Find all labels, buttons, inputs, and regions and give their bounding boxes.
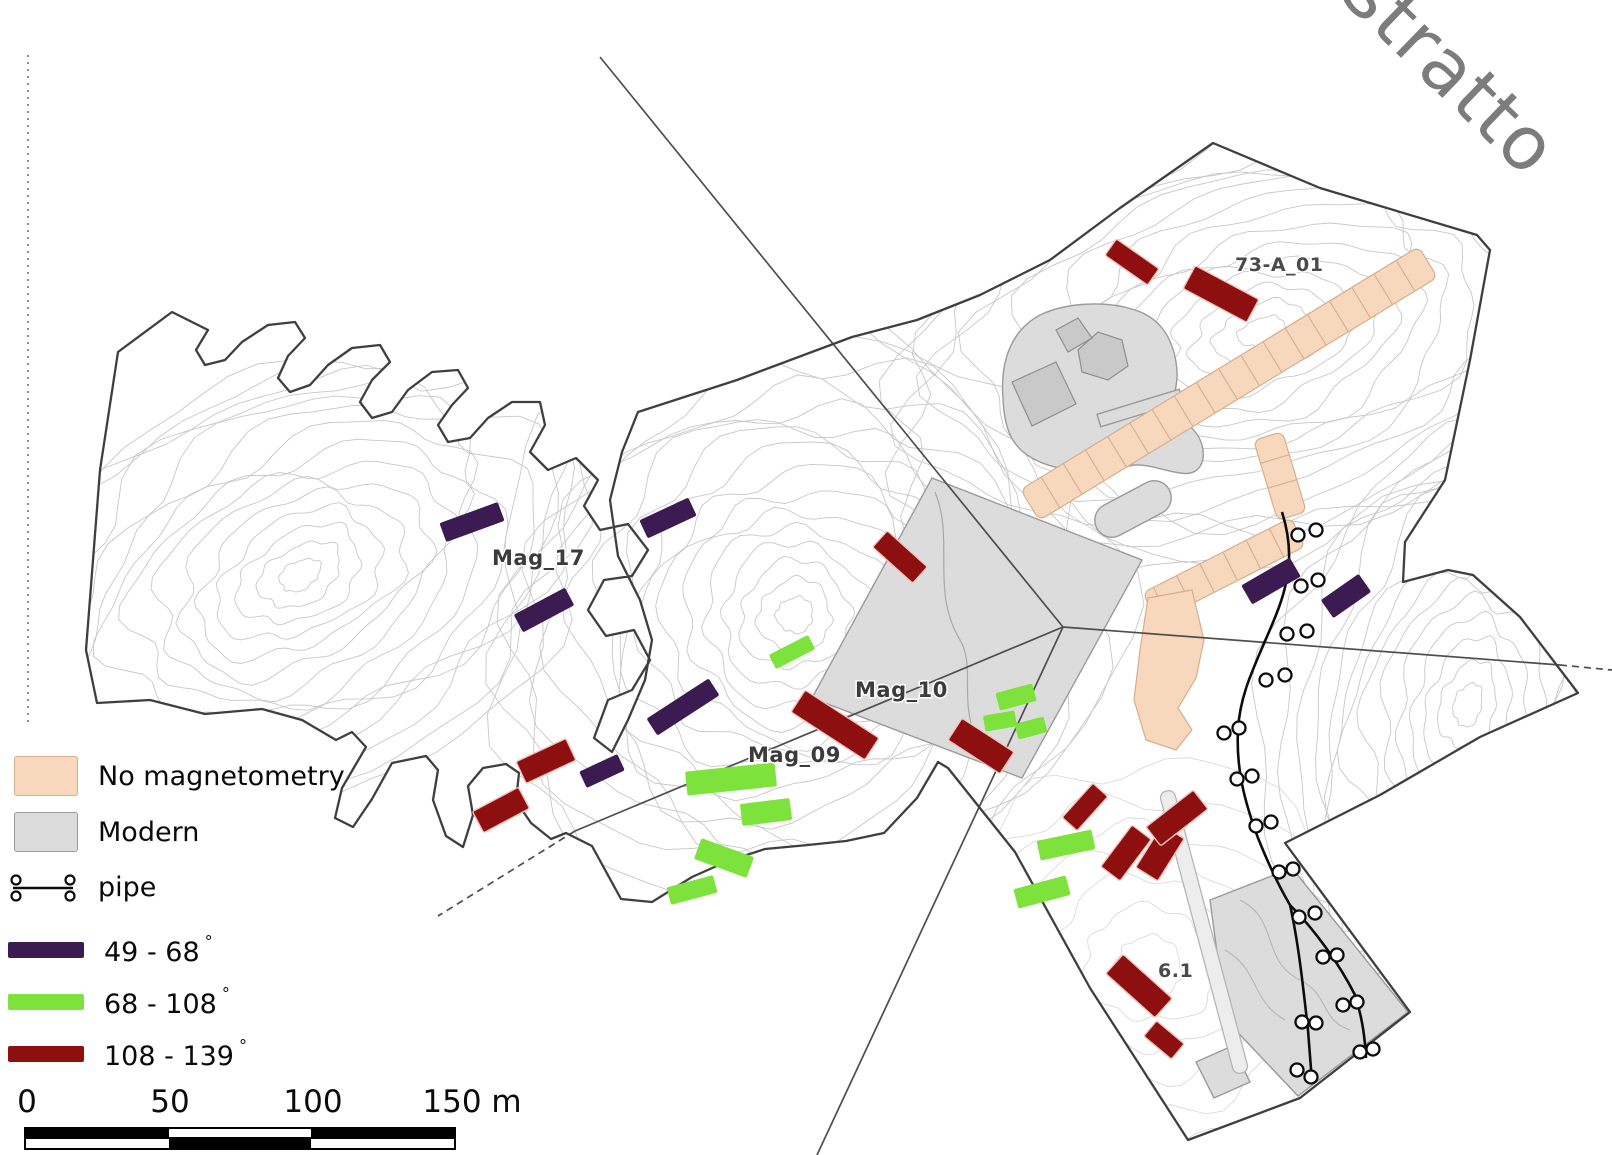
anomaly-bar-108-139: [472, 787, 529, 833]
survey-map-figure: Mag_17Mag_10Mag_0973-A_016.1 No magnetom…: [0, 0, 1612, 1155]
pipe-marker: [1337, 999, 1350, 1012]
pipe-marker: [1281, 628, 1294, 641]
anomaly-bar-49-68: [439, 502, 504, 542]
pipe-marker: [1246, 770, 1259, 783]
pipe-marker: [1293, 911, 1306, 924]
legend-label: Modern: [98, 817, 199, 848]
anomaly-bar-68-108: [1037, 829, 1096, 860]
scale-tick-50: 50: [150, 1084, 189, 1120]
anomaly-bar-108-139: [516, 739, 576, 784]
legend-item-angle-49-68: 49 - 68°: [8, 932, 213, 968]
anomaly-bar-68-108: [1013, 875, 1070, 908]
pipe-marker: [1317, 951, 1330, 964]
modern-swatch: [14, 812, 78, 852]
pipe-marker: [1287, 863, 1300, 876]
anomaly-bar-49-68: [647, 678, 720, 735]
pipe-marker: [1250, 820, 1263, 833]
legend-item-angle-108-139: 108 - 139°: [8, 1036, 247, 1072]
anomaly-bar-68-108: [769, 635, 815, 669]
legend-label: 108 - 139°: [104, 1036, 247, 1072]
no-magnetometry-boot: [1134, 590, 1204, 750]
pipe-marker: [1351, 996, 1364, 1009]
no-magnetometry-swatch: [14, 756, 78, 796]
legend-label: 49 - 68°: [104, 932, 213, 968]
angle-49-68-swatch: [8, 942, 84, 958]
pipe-marker: [1279, 669, 1292, 682]
anomaly-bar-108-139: [1144, 1021, 1184, 1059]
degree-symbol: °: [205, 932, 213, 951]
pipe-marker: [1331, 949, 1344, 962]
pipe-marker: [1296, 1016, 1309, 1029]
angle-108-139-swatch: [8, 1046, 84, 1062]
anomaly-bar-68-108: [685, 762, 777, 795]
pipe-marker: [1291, 1064, 1304, 1077]
legend-item-angle-68-108: 68 - 108°: [8, 984, 230, 1020]
legend-item-modern: Modern: [14, 812, 199, 852]
anomaly-bar-49-68: [1321, 574, 1371, 618]
pipe-marker: [1295, 580, 1308, 593]
map-label-Mag_09: Mag_09: [748, 743, 841, 767]
map-label-73-A_01: 73-A_01: [1235, 254, 1323, 276]
pipe-icon: [8, 873, 78, 903]
anomaly-bar-49-68: [579, 754, 625, 788]
pipe-marker: [1260, 674, 1273, 687]
scale-tick-150: 150 m: [422, 1084, 521, 1120]
pipe-marker: [1354, 1046, 1367, 1059]
boundary-line-east-dashed: [1560, 665, 1612, 670]
pipe-marker: [1310, 1017, 1323, 1030]
pipe-marker: [1310, 524, 1323, 537]
modern-area-stadium: [1089, 475, 1177, 544]
boundary-line-north: [600, 57, 1063, 627]
legend-item-no-magnetometry: No magnetometry: [14, 756, 345, 796]
pipe-marker: [1218, 727, 1231, 740]
anomaly-bar-68-108: [740, 798, 792, 826]
pipe-marker: [1231, 773, 1244, 786]
legend-label: 68 - 108°: [104, 984, 230, 1020]
degree-symbol: °: [222, 984, 230, 1003]
map-label-6.1: 6.1: [1158, 960, 1193, 982]
scale-bar-graphic: [24, 1127, 456, 1150]
pipe-marker: [1273, 866, 1286, 879]
map-canvas: Mag_17Mag_10Mag_0973-A_016.1: [0, 0, 1612, 1155]
pipe-marker: [1265, 816, 1278, 829]
pipe-marker: [1367, 1043, 1380, 1056]
legend-item-pipe: pipe: [8, 872, 156, 903]
angle-68-108-swatch: [8, 994, 84, 1010]
pipe-marker: [1312, 574, 1325, 587]
anomaly-bar-108-139: [1062, 783, 1108, 831]
pipe-marker: [1305, 1071, 1318, 1084]
pipe-marker: [1292, 529, 1305, 542]
map-label-Mag_17: Mag_17: [492, 546, 585, 570]
map-label-Mag_10: Mag_10: [855, 678, 948, 702]
legend-label: No magnetometry: [98, 761, 345, 792]
pipe-marker: [1301, 625, 1314, 638]
pipe-marker: [1233, 722, 1246, 735]
degree-symbol: °: [239, 1036, 247, 1055]
anomaly-bar-68-108: [666, 875, 717, 905]
legend-label: pipe: [98, 872, 156, 903]
scale-tick-100: 100: [283, 1084, 342, 1120]
pipe-marker: [1309, 907, 1322, 920]
scale-tick-0: 0: [17, 1084, 37, 1120]
